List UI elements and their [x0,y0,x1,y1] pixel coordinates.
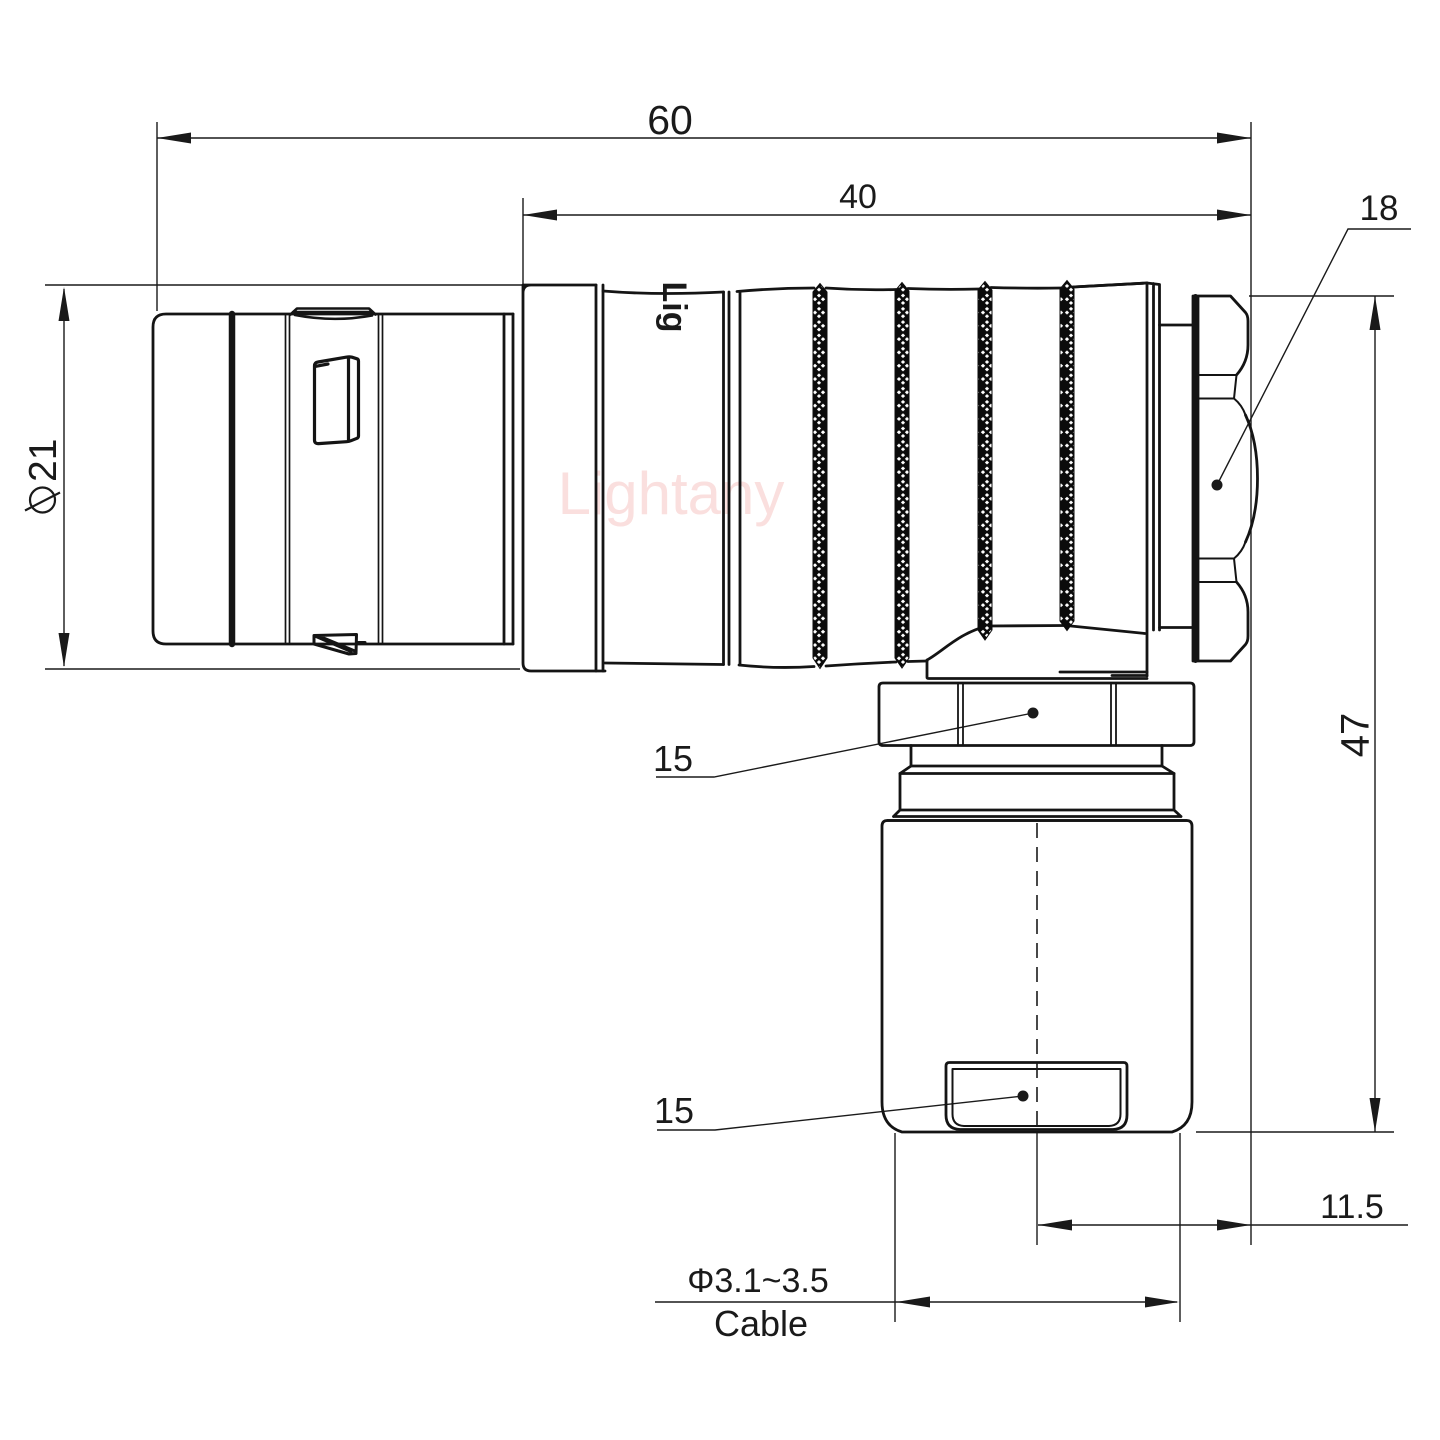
svg-text:Lightany: Lightany [558,460,785,527]
svg-text:Lig: Lig [655,282,693,333]
svg-text:15: 15 [654,1090,694,1131]
svg-text:47: 47 [1334,713,1378,758]
svg-text:Φ3.1~3.5: Φ3.1~3.5 [687,1262,829,1300]
svg-text:18: 18 [1360,189,1399,228]
svg-text:Cable: Cable [714,1303,808,1344]
svg-text:15: 15 [653,738,693,779]
svg-text:21: 21 [22,439,65,482]
svg-text:40: 40 [839,178,877,216]
svg-text:11.5: 11.5 [1320,1188,1384,1226]
svg-text:60: 60 [647,97,693,143]
